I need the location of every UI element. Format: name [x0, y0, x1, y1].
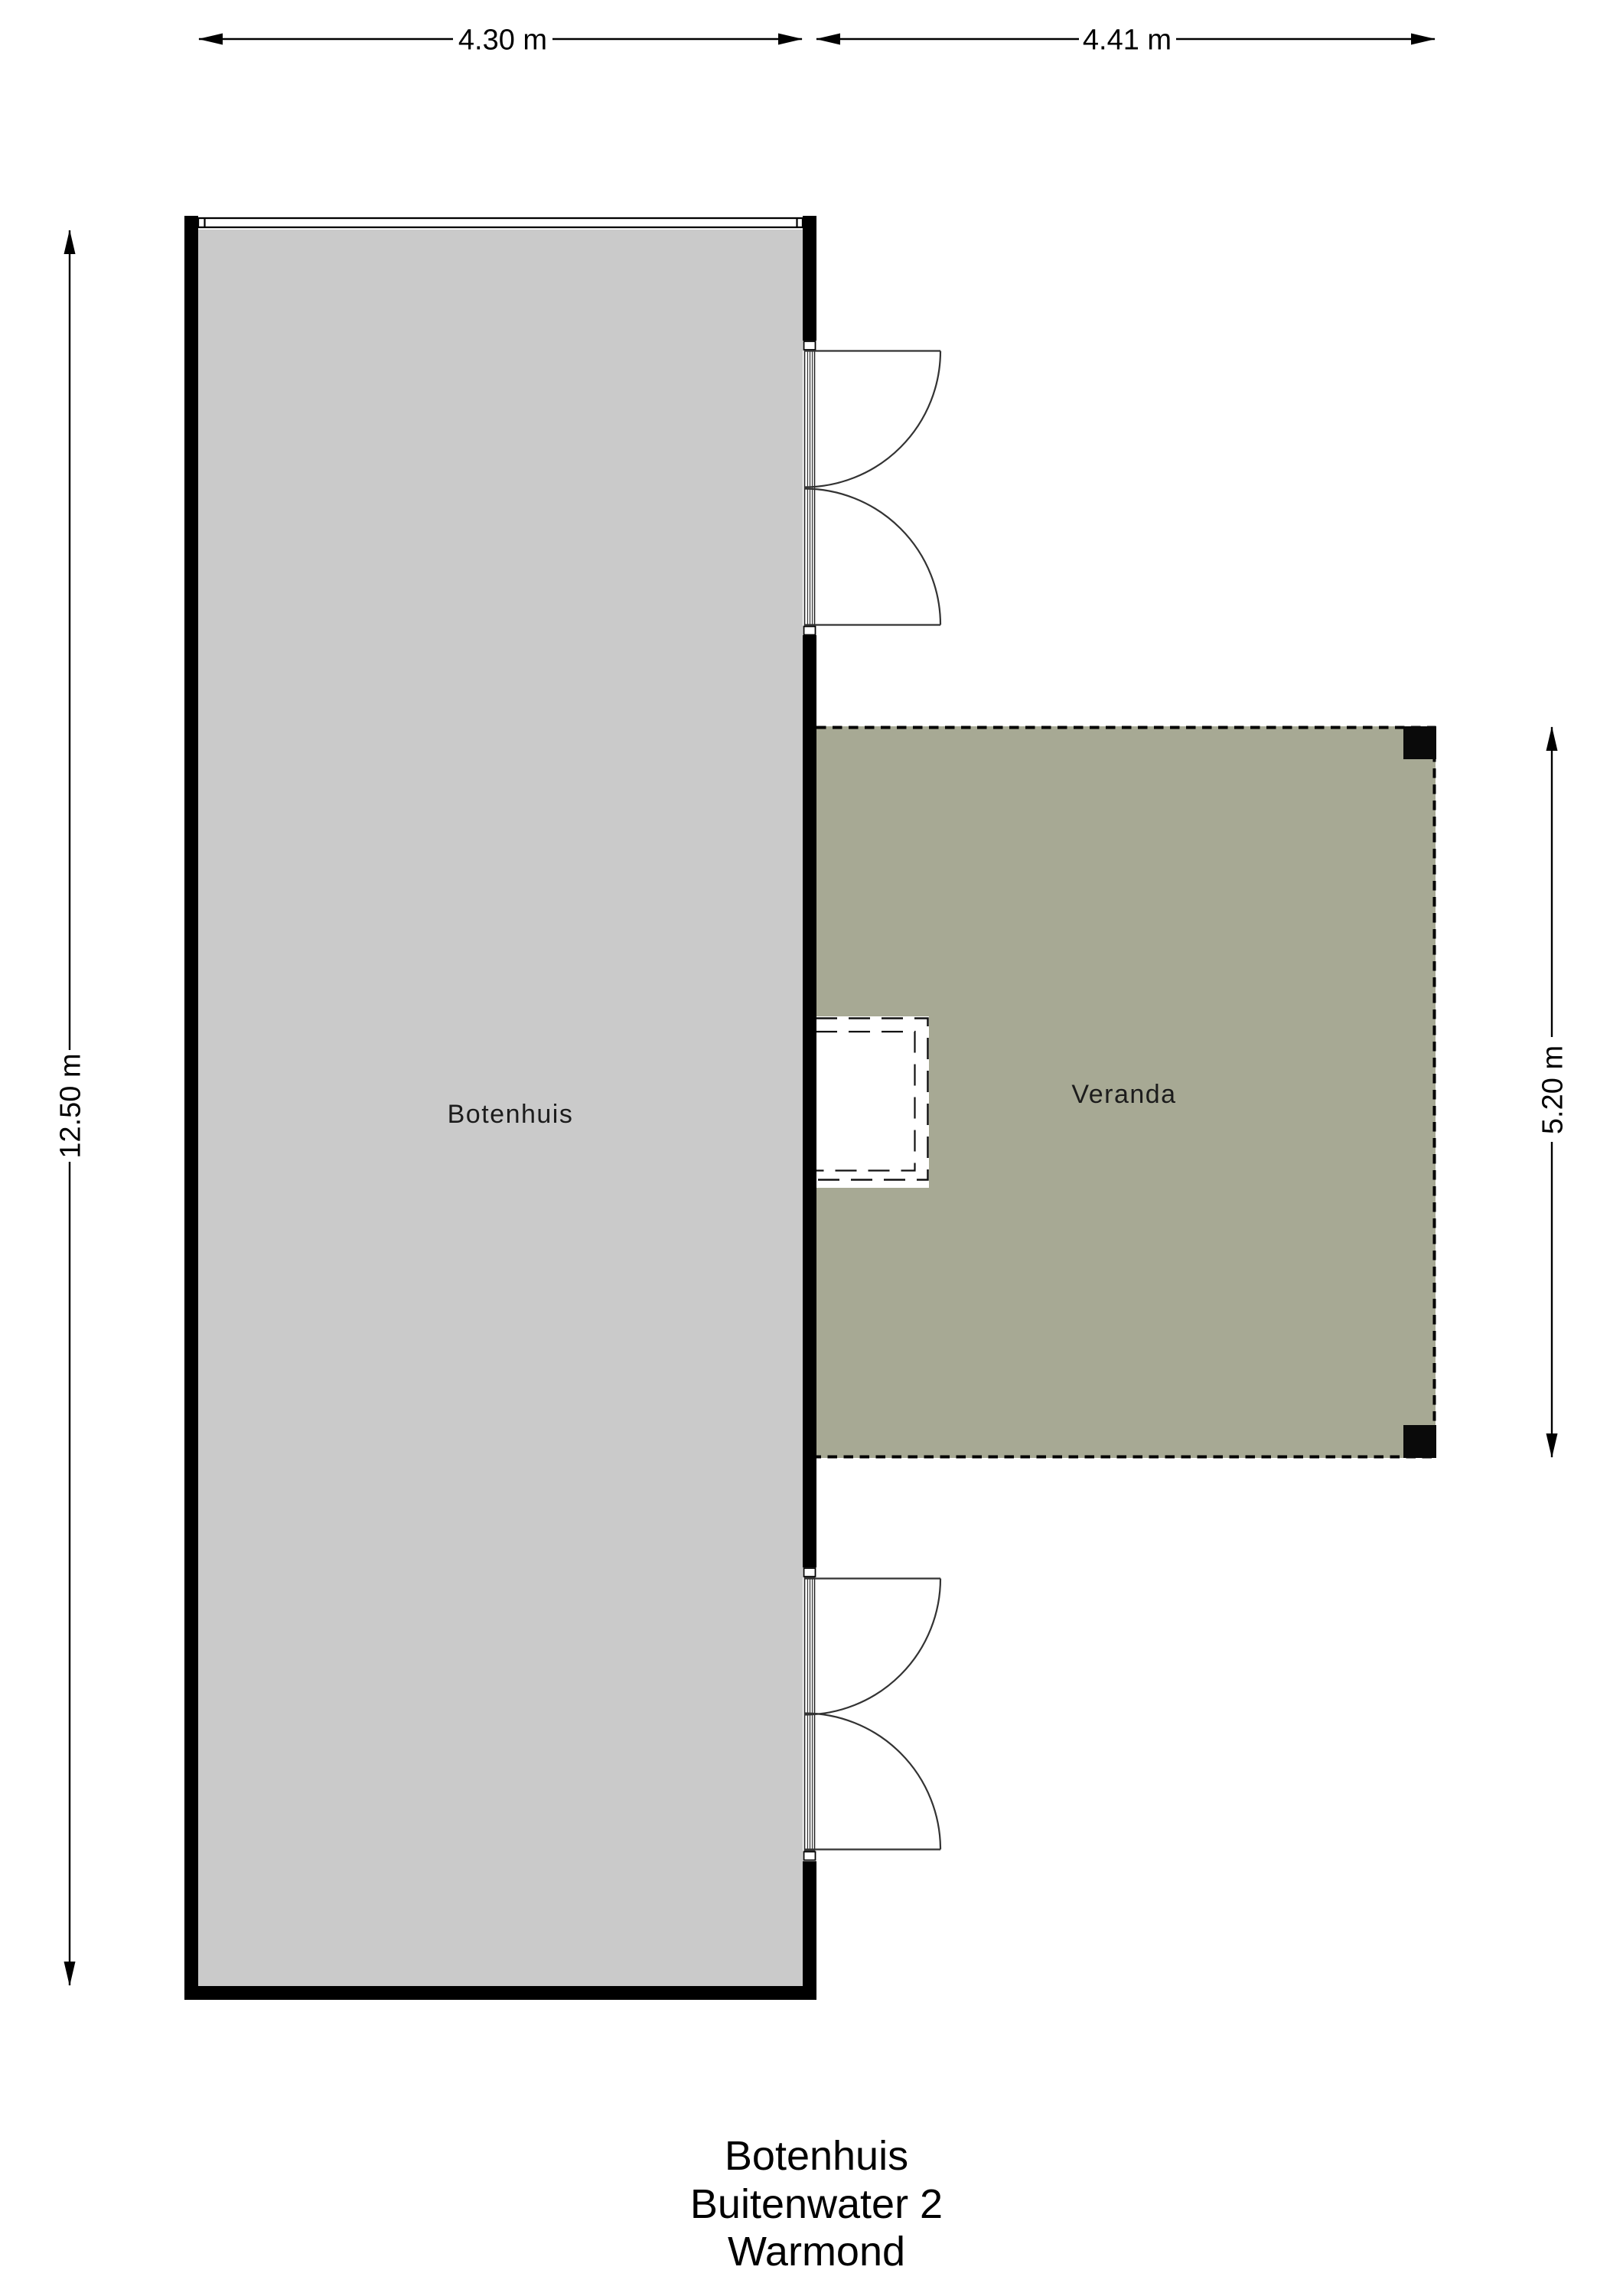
svg-text:4.41 m: 4.41 m — [1083, 24, 1172, 57]
svg-text:Warmond: Warmond — [728, 2229, 905, 2275]
svg-text:Buitenwater 2: Buitenwater 2 — [690, 2181, 943, 2227]
svg-text:Veranda: Veranda — [1071, 1080, 1176, 1109]
svg-text:Botenhuis: Botenhuis — [448, 1100, 574, 1129]
svg-text:12.50 m: 12.50 m — [55, 1053, 87, 1158]
svg-text:5.20 m: 5.20 m — [1537, 1045, 1569, 1134]
svg-text:4.30 m: 4.30 m — [458, 24, 547, 57]
svg-text:Botenhuis: Botenhuis — [725, 2133, 908, 2179]
